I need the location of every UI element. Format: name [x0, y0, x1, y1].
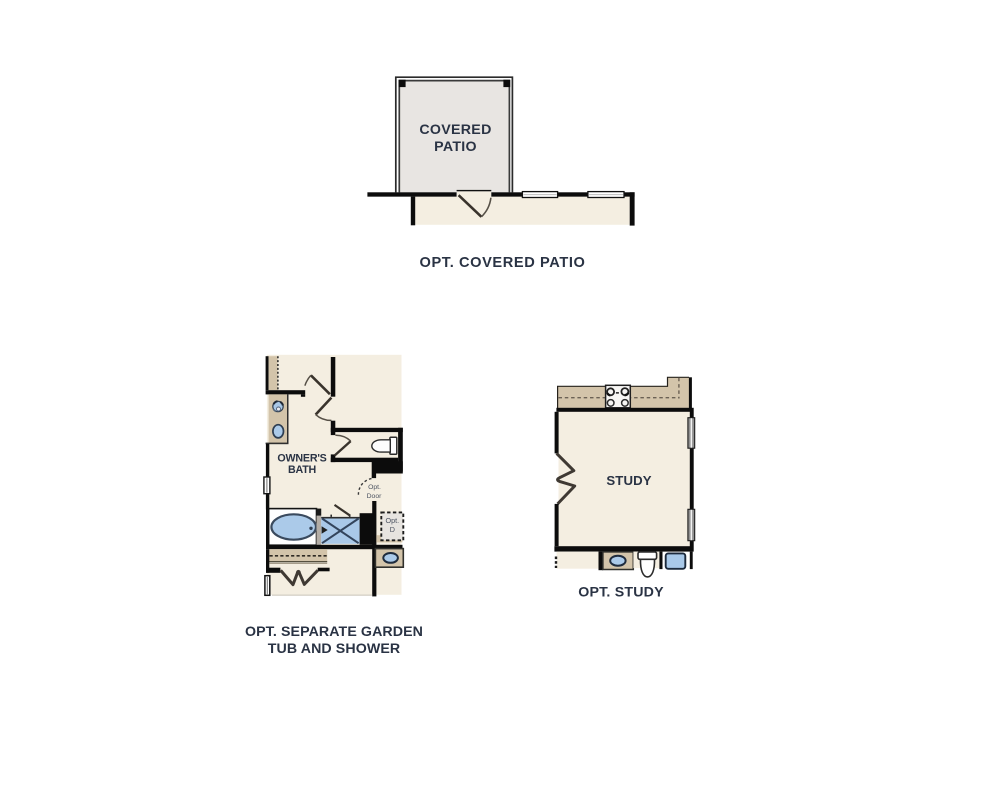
svg-text:TUB AND SHOWER: TUB AND SHOWER: [268, 641, 401, 657]
svg-text:Opt.: Opt.: [368, 484, 381, 491]
svg-text:OPT. COVERED PATIO: OPT. COVERED PATIO: [420, 255, 586, 271]
svg-text:D: D: [390, 525, 395, 534]
svg-text:COVERED: COVERED: [419, 122, 491, 138]
svg-text:Door: Door: [367, 493, 382, 500]
svg-text:OPT. SEPARATE GARDEN: OPT. SEPARATE GARDEN: [245, 624, 423, 640]
svg-text:BATH: BATH: [288, 464, 316, 476]
svg-text:PATIO: PATIO: [434, 139, 477, 155]
svg-text:STUDY: STUDY: [606, 473, 651, 488]
svg-text:OWNER'S: OWNER'S: [277, 453, 326, 465]
svg-text:OPT. STUDY: OPT. STUDY: [578, 584, 664, 600]
svg-text:Opt.: Opt.: [386, 516, 400, 525]
